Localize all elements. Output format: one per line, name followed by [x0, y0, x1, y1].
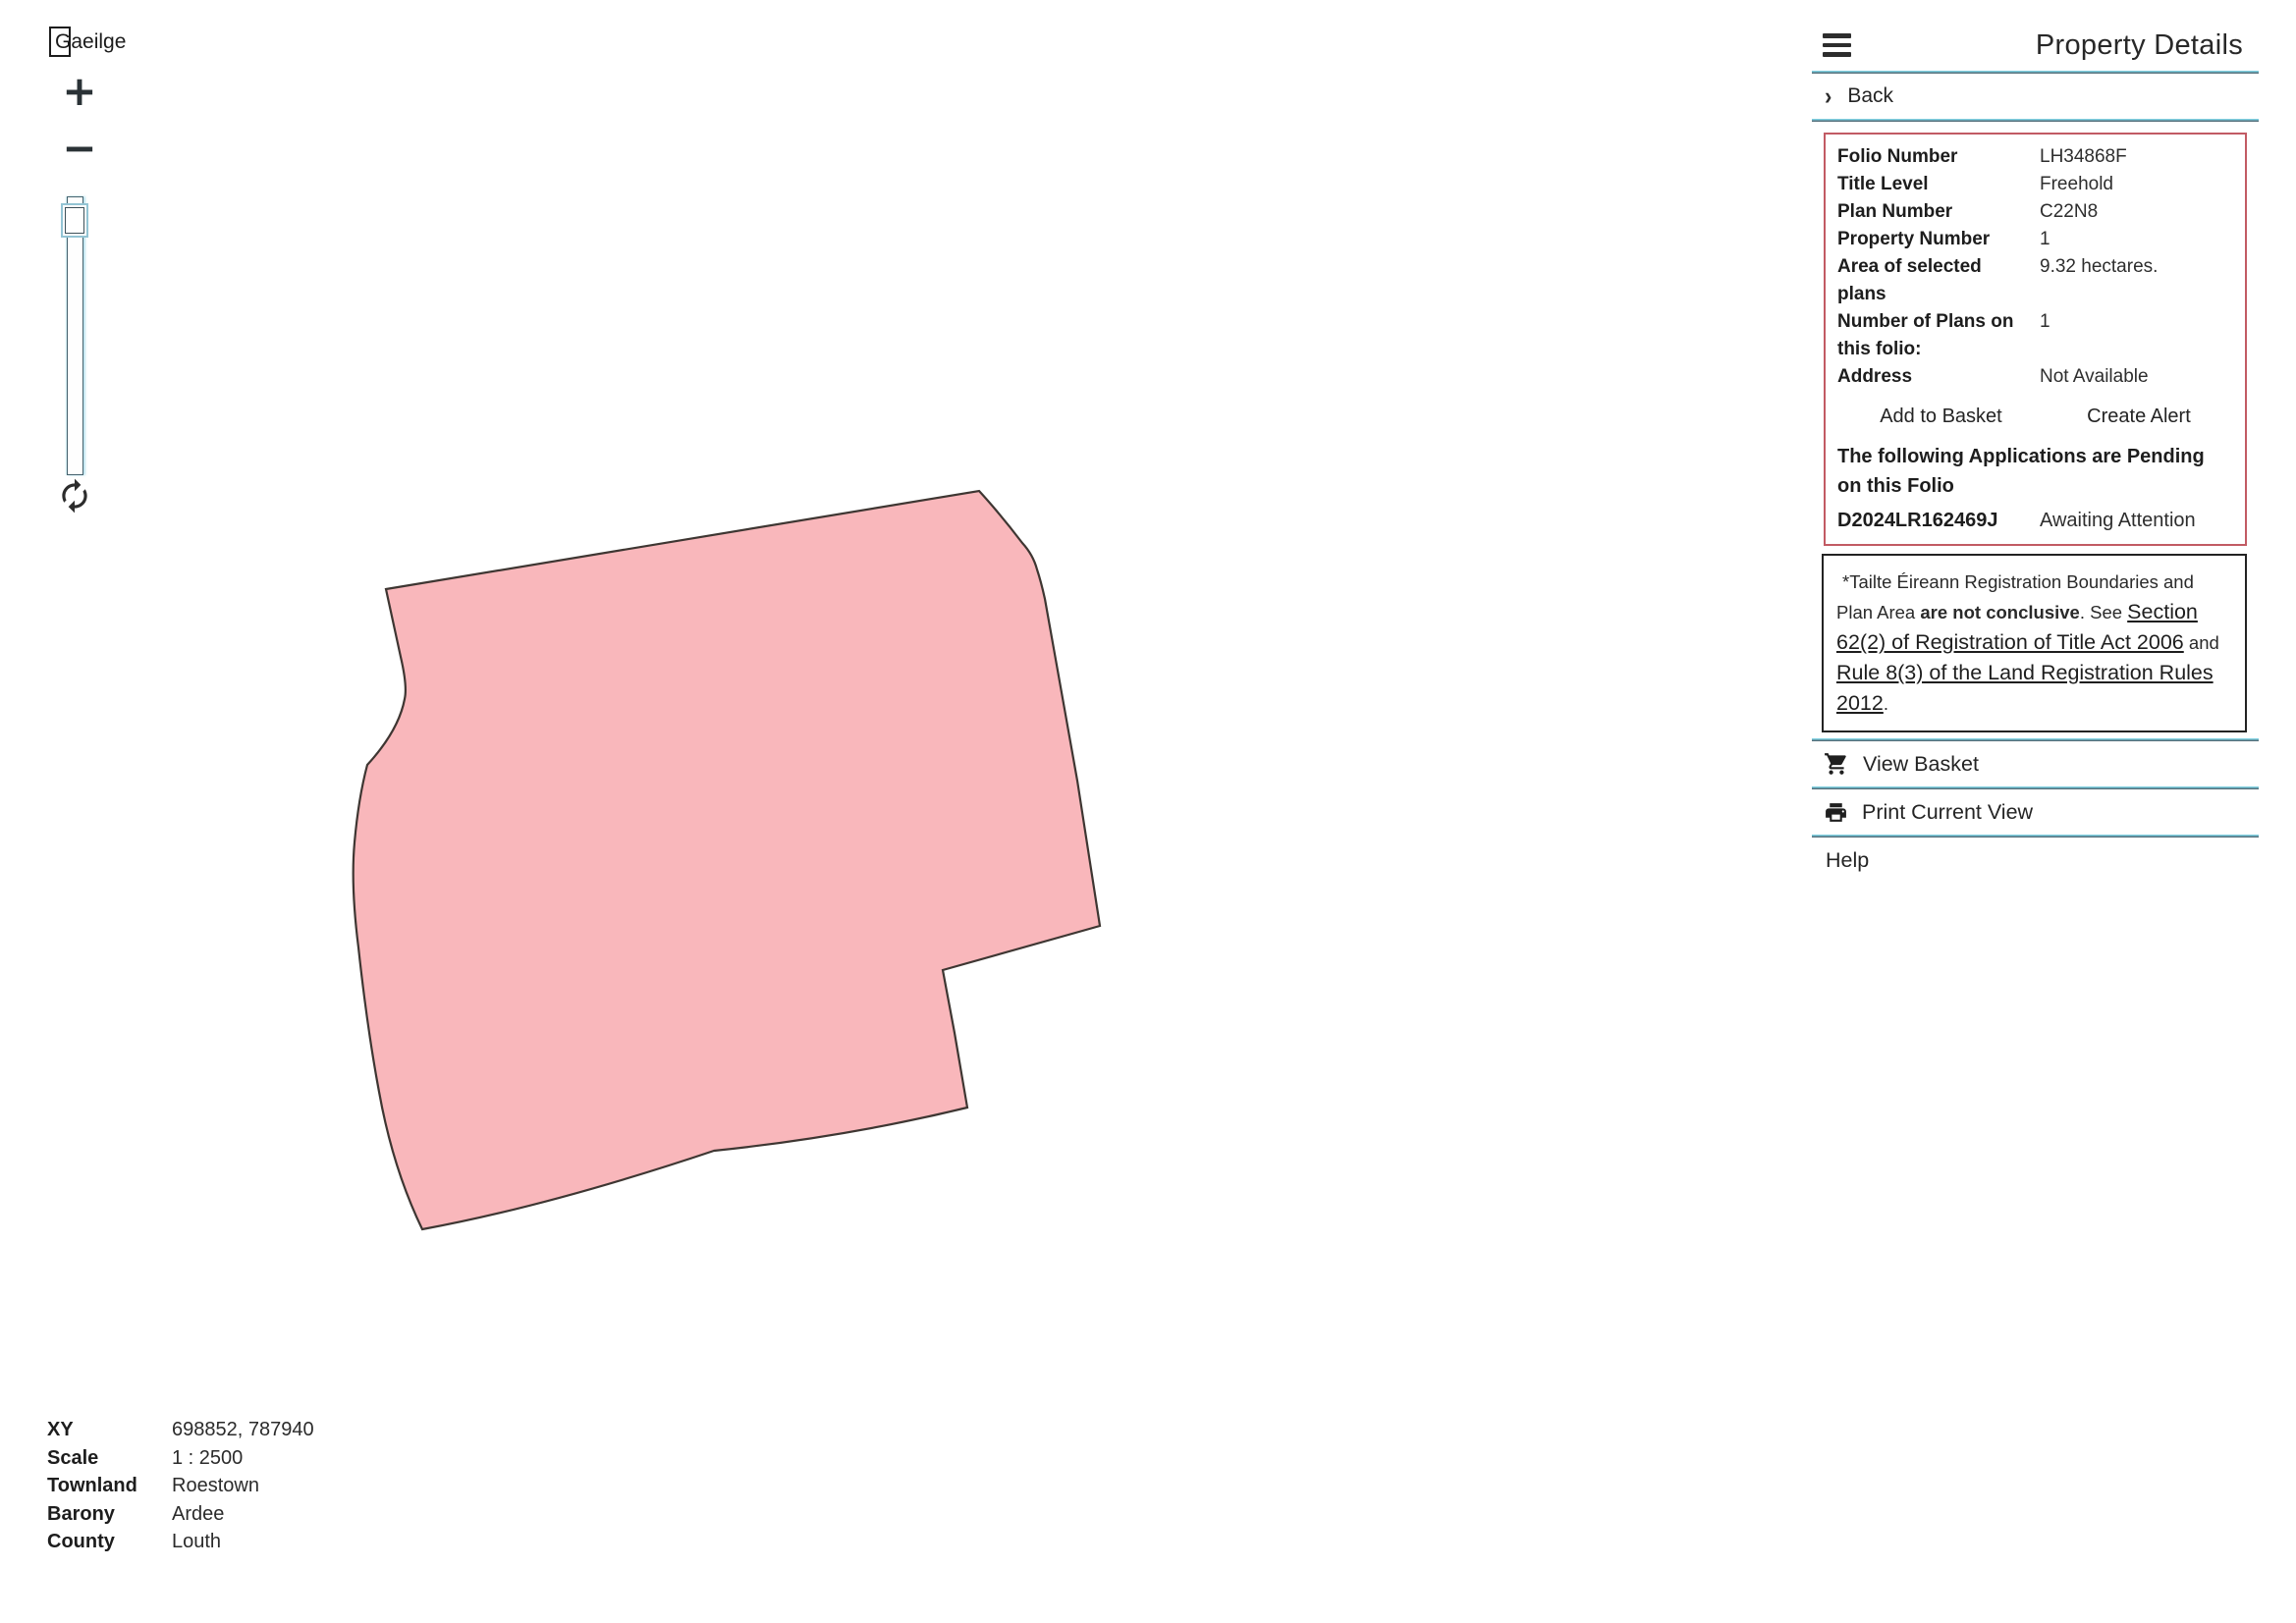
- actions-row: Add to Basket Create Alert: [1837, 406, 2233, 428]
- menu-item-label: Print Current View: [1862, 800, 2033, 825]
- info-row-county: County Louth: [47, 1528, 314, 1556]
- info-value: Roestown: [172, 1472, 314, 1500]
- detail-row-plan-number: Plan Number C22N8: [1837, 198, 2233, 226]
- parcel-polygon[interactable]: [354, 491, 1100, 1229]
- info-label: Barony: [47, 1500, 172, 1529]
- create-alert-button[interactable]: Create Alert: [2087, 406, 2191, 428]
- detail-value: 9.32 hectares.: [2040, 253, 2233, 308]
- zoom-slider[interactable]: [67, 196, 83, 475]
- info-value: Louth: [172, 1528, 314, 1556]
- detail-value: 1: [2040, 226, 2233, 253]
- info-value: 698852, 787940: [172, 1416, 314, 1444]
- info-row-townland: Townland Roestown: [47, 1472, 314, 1500]
- zoom-out-button[interactable]: −: [59, 128, 100, 169]
- application-id: D2024LR162469J: [1837, 507, 2032, 534]
- divider: [1812, 119, 2259, 122]
- printer-icon: [1824, 800, 1848, 825]
- detail-row-title-level: Title Level Freehold: [1837, 171, 2233, 198]
- pending-application-row: D2024LR162469J Awaiting Attention: [1837, 507, 2233, 534]
- disclaimer-box: *Tailte Éireann Registration Boundaries …: [1822, 554, 2247, 732]
- back-label: Back: [1847, 84, 1893, 108]
- detail-value: 1: [2040, 308, 2233, 363]
- app-root: Gaeilge + − Property Details › Back Foli…: [0, 0, 2296, 1623]
- chevron-right-icon: ›: [1825, 81, 1831, 111]
- detail-value: C22N8: [2040, 198, 2233, 226]
- property-details-panel: Property Details › Back Folio Number LH3…: [1812, 20, 2259, 883]
- info-row-barony: Barony Ardee: [47, 1500, 314, 1529]
- menu-icon[interactable]: [1823, 33, 1851, 57]
- application-status: Awaiting Attention: [2040, 507, 2233, 534]
- info-value: 1 : 2500: [172, 1444, 314, 1473]
- detail-label: Title Level: [1837, 171, 2032, 198]
- detail-label: Property Number: [1837, 226, 2032, 253]
- menu-item-label: View Basket: [1863, 752, 1979, 777]
- language-toggle[interactable]: Gaeilge: [47, 24, 141, 63]
- detail-row-folio-number: Folio Number LH34868F: [1837, 143, 2233, 171]
- back-button[interactable]: › Back: [1812, 74, 2259, 119]
- info-row-xy: XY 698852, 787940: [47, 1416, 314, 1444]
- panel-title: Property Details: [2036, 29, 2243, 62]
- menu-item-label: Help: [1826, 848, 1869, 873]
- zoom-in-button[interactable]: +: [59, 71, 100, 112]
- info-label: County: [47, 1528, 172, 1556]
- info-value: Ardee: [172, 1500, 314, 1529]
- info-label: Townland: [47, 1472, 172, 1500]
- disclaimer-text: .: [1884, 693, 1888, 714]
- detail-row-address: Address Not Available: [1837, 363, 2233, 391]
- map-info: XY 698852, 787940 Scale 1 : 2500 Townlan…: [47, 1416, 314, 1556]
- disclaimer-text: . See: [2080, 602, 2127, 622]
- zoom-slider-handle[interactable]: [61, 203, 88, 238]
- disclaimer-text: and: [2184, 632, 2219, 653]
- help-button[interactable]: Help: [1812, 838, 2259, 883]
- print-current-view-button[interactable]: Print Current View: [1812, 789, 2259, 835]
- detail-label: Area of selected plans: [1837, 253, 2032, 308]
- disclaimer-bold-text: are not conclusive: [1920, 602, 2079, 622]
- detail-label: Address: [1837, 363, 2032, 391]
- info-label: Scale: [47, 1444, 172, 1473]
- add-to-basket-button[interactable]: Add to Basket: [1880, 406, 2002, 428]
- detail-value: Not Available: [2040, 363, 2233, 391]
- cart-icon: [1824, 751, 1849, 777]
- detail-value: LH34868F: [2040, 143, 2233, 171]
- panel-header: Property Details: [1812, 20, 2259, 71]
- detail-label: Folio Number: [1837, 143, 2032, 171]
- info-row-scale: Scale 1 : 2500: [47, 1444, 314, 1473]
- language-label: Gaeilge: [55, 30, 126, 54]
- detail-label: Number of Plans on this folio:: [1837, 308, 2032, 363]
- rule-8-link[interactable]: Rule 8(3) of the Land Registration Rules…: [1836, 661, 2214, 715]
- detail-row-property-number: Property Number 1: [1837, 226, 2233, 253]
- property-summary-box: Folio Number LH34868F Title Level Freeho…: [1824, 133, 2247, 546]
- view-basket-button[interactable]: View Basket: [1812, 741, 2259, 786]
- refresh-button[interactable]: [56, 477, 93, 517]
- detail-value: Freehold: [2040, 171, 2233, 198]
- info-label: XY: [47, 1416, 172, 1444]
- refresh-icon: [56, 477, 93, 514]
- detail-label: Plan Number: [1837, 198, 2032, 226]
- detail-row-area: Area of selected plans 9.32 hectares.: [1837, 253, 2233, 308]
- detail-row-number-of-plans: Number of Plans on this folio: 1: [1837, 308, 2233, 363]
- pending-applications-heading: The following Applications are Pending o…: [1837, 442, 2233, 501]
